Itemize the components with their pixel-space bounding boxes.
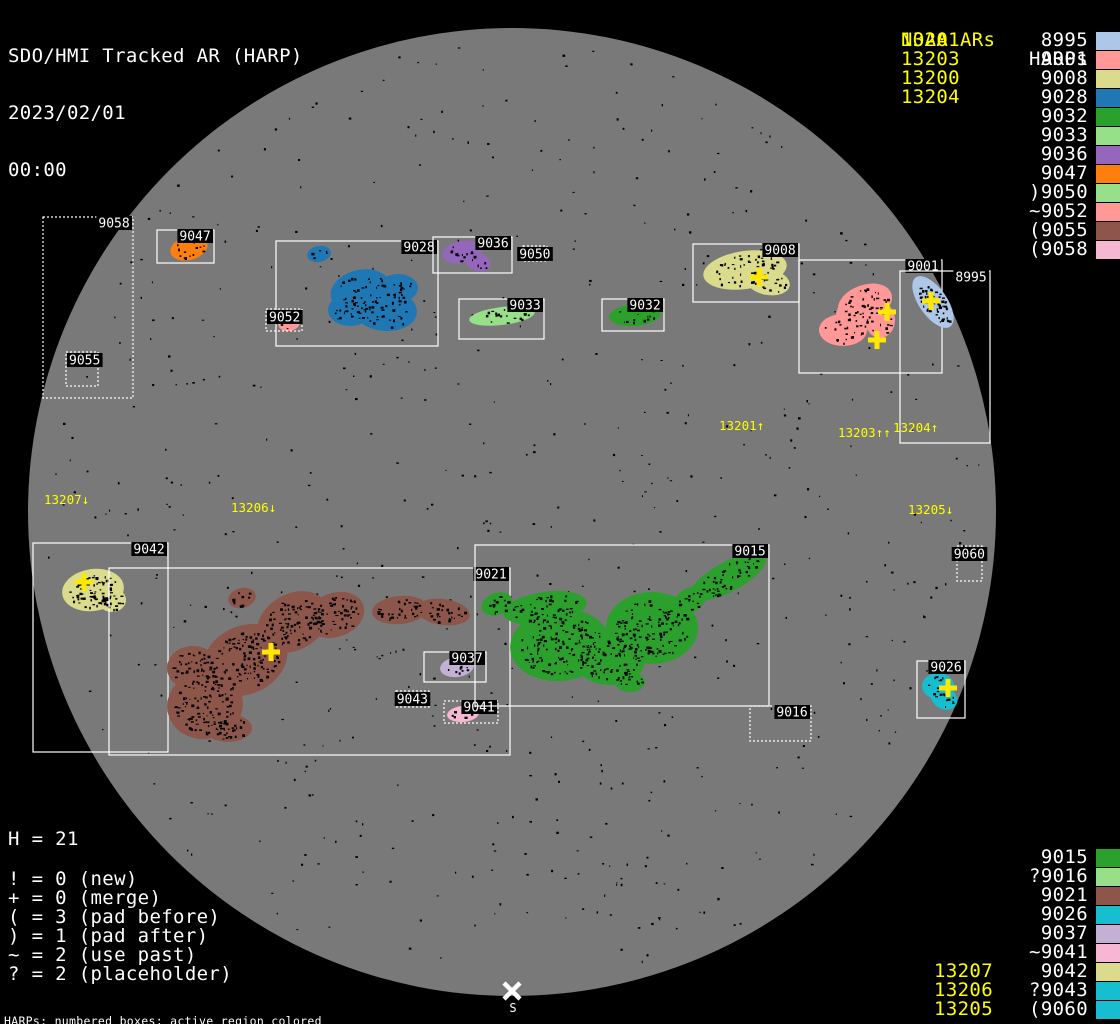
legend-color-swatch xyxy=(1096,944,1120,962)
noaa-equator-label: 13206↓ xyxy=(231,500,276,515)
legend-color-swatch xyxy=(1096,1001,1120,1019)
date-label: 2023/02/01 xyxy=(8,104,303,123)
harp-label-9021: 9021 xyxy=(475,568,506,583)
flag-legend: ! = 0 (new)+ = 0 (merge)( = 3 (pad befor… xyxy=(8,870,232,984)
harp-label-9055: 9055 xyxy=(69,354,100,369)
harp-label-9036: 9036 xyxy=(477,237,508,252)
active-region-blob xyxy=(836,299,876,331)
harp-label-9042: 9042 xyxy=(133,543,164,558)
harp-label-9041: 9041 xyxy=(463,701,494,716)
title-block: SDO/HMI Tracked AR (HARP) 2023/02/01 00:… xyxy=(8,9,303,218)
footer-notes: HARPs: numbered boxes; active region col… xyxy=(4,991,423,1024)
harp-label-9026: 9026 xyxy=(930,661,961,676)
legend-color-swatch xyxy=(1096,982,1120,1000)
time-label: 00:00 xyxy=(8,161,303,180)
harp-label-9043: 9043 xyxy=(397,693,428,708)
legend-top: NOAA ARs HARPs 1320113203132001320489959… xyxy=(900,12,1120,282)
harp-map-stage: 9058905590479028903690509033905290329008… xyxy=(0,0,1120,1024)
active-region-blob xyxy=(615,672,645,692)
harp-region-9043: 9043 xyxy=(395,691,431,708)
footer-line-harps: HARPs: numbered boxes; active region col… xyxy=(4,1015,423,1024)
legend-color-swatch xyxy=(1096,127,1120,145)
harp-label-9033: 9033 xyxy=(509,299,540,314)
legend-color-swatch xyxy=(1096,849,1120,867)
harp-count: H = 21 xyxy=(8,830,79,849)
legend-color-swatch xyxy=(1096,70,1120,88)
legend-color-swatch xyxy=(1096,184,1120,202)
legend-color-swatch xyxy=(1096,906,1120,924)
legend-color-swatch xyxy=(1096,241,1120,259)
legend-color-swatch xyxy=(1096,925,1120,943)
south-pole-label: S xyxy=(509,1001,516,1015)
legend-color-swatch xyxy=(1096,32,1120,50)
harp-label-9028: 9028 xyxy=(403,241,434,256)
legend-color-swatch xyxy=(1096,51,1120,69)
legend-color-swatch xyxy=(1096,108,1120,126)
noaa-equator-label: 13203↑↑ xyxy=(838,425,891,440)
harp-label-9052: 9052 xyxy=(269,311,300,326)
noaa-equator-label: 13204↑ xyxy=(893,420,938,435)
legend-color-swatch xyxy=(1096,165,1120,183)
legend-harp-number: (9058 xyxy=(900,240,1088,259)
harp-label-9047: 9047 xyxy=(179,230,210,245)
harp-label-9032: 9032 xyxy=(629,299,660,314)
noaa-equator-label: 13207↓ xyxy=(44,492,89,507)
harp-label-9050: 9050 xyxy=(519,248,550,263)
legend-color-swatch xyxy=(1096,963,1120,981)
legend-color-swatch xyxy=(1096,203,1120,221)
legend-bottom: 9015?9016902190269037~904113207904213206… xyxy=(900,848,1120,1024)
harp-region-9050: 9050 xyxy=(517,246,553,263)
legend-color-swatch xyxy=(1096,887,1120,905)
legend-color-swatch xyxy=(1096,222,1120,240)
harp-label-9058: 9058 xyxy=(98,217,129,232)
harp-label-9016: 9016 xyxy=(776,706,807,721)
page-title: SDO/HMI Tracked AR (HARP) xyxy=(8,47,303,66)
harp-label-9008: 9008 xyxy=(764,244,795,259)
legend-color-swatch xyxy=(1096,89,1120,107)
noaa-equator-label: 13201↑ xyxy=(719,418,764,433)
harp-label-9060: 9060 xyxy=(954,548,985,563)
flag-legend-line: ? = 2 (placeholder) xyxy=(8,965,232,984)
harp-label-9037: 9037 xyxy=(451,652,482,667)
harp-label-9015: 9015 xyxy=(734,545,765,560)
legend-color-swatch xyxy=(1096,868,1120,886)
active-region-blob xyxy=(378,274,418,302)
noaa-equator-label: 13205↓ xyxy=(908,502,953,517)
legend-color-swatch xyxy=(1096,146,1120,164)
legend-harp-number: (9060 xyxy=(900,1000,1088,1019)
